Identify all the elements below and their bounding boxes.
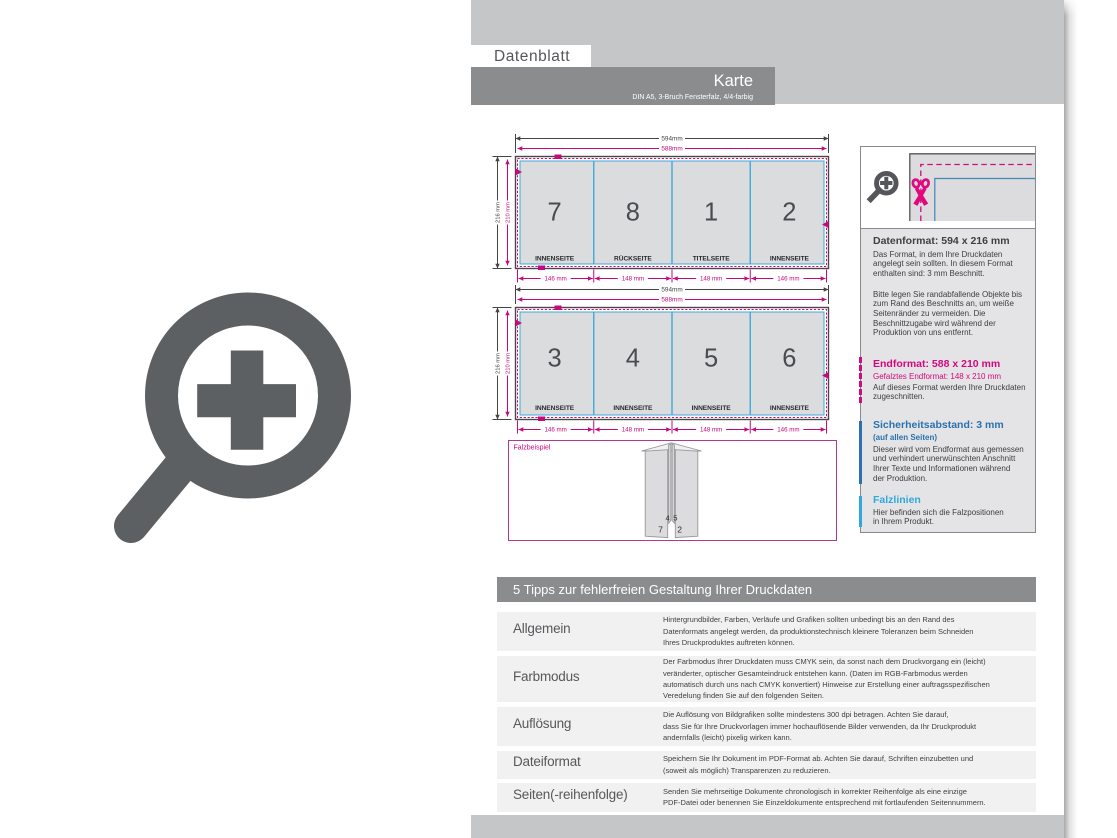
svg-text:INNENSEITE: INNENSEITE [613,405,653,412]
svg-text:148 mm: 148 mm [622,276,644,283]
svg-text:148 mm: 148 mm [700,276,722,283]
svg-text:210 mm: 210 mm [506,202,512,223]
svg-text:594mm: 594mm [661,287,682,294]
svg-text:148 mm: 148 mm [622,427,644,434]
svg-text:216 mm: 216 mm [496,353,502,374]
svg-text:INNENSEITE: INNENSEITE [535,256,575,263]
svg-text:3: 3 [548,344,562,372]
svg-text:5: 5 [673,513,677,522]
svg-text:210 mm: 210 mm [506,353,512,374]
svg-text:Falzbeispiel: Falzbeispiel [514,445,551,452]
svg-text:216 mm: 216 mm [496,202,502,223]
svg-text:148 mm: 148 mm [700,427,722,434]
svg-text:146 mm: 146 mm [544,276,566,283]
svg-text:146 mm: 146 mm [544,427,566,434]
svg-text:5: 5 [704,344,718,372]
svg-text:7: 7 [548,198,562,226]
svg-text:2: 2 [782,198,796,226]
svg-text:INNENSEITE: INNENSEITE [770,256,810,263]
svg-text:1: 1 [704,198,718,226]
svg-text:INNENSEITE: INNENSEITE [692,405,732,412]
svg-text:4: 4 [626,344,640,372]
svg-text:8: 8 [626,198,640,226]
svg-text:RÜCKSEITE: RÜCKSEITE [614,254,652,263]
svg-text:7: 7 [658,525,663,535]
svg-text:4: 4 [665,513,669,522]
svg-text:588mm: 588mm [661,146,682,153]
svg-text:TITELSEITE: TITELSEITE [693,256,731,263]
svg-text:INNENSEITE: INNENSEITE [770,405,810,412]
svg-text:INNENSEITE: INNENSEITE [535,405,575,412]
svg-text:146 mm: 146 mm [777,427,799,434]
svg-text:588mm: 588mm [661,297,682,304]
svg-text:6: 6 [782,344,796,372]
svg-text:594mm: 594mm [661,136,682,143]
svg-text:2: 2 [677,524,682,534]
svg-text:146 mm: 146 mm [777,276,799,283]
